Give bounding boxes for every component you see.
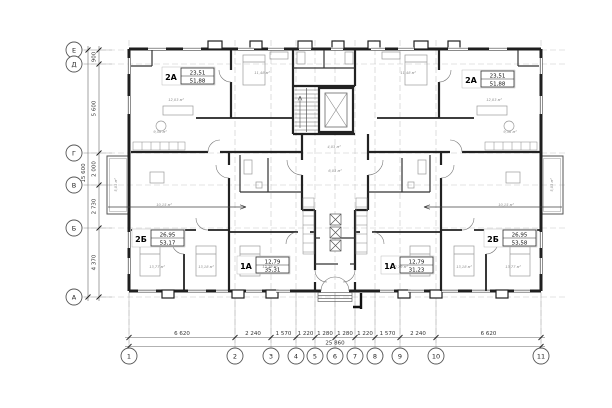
axis-bottom-4: 4 bbox=[294, 352, 298, 360]
axis-bottom-8: 8 bbox=[373, 352, 377, 360]
room-label: 9,56 м² bbox=[503, 130, 517, 134]
dim-left-5: 4 370 bbox=[92, 254, 98, 270]
apartment-type: 2Б bbox=[135, 235, 147, 244]
axis-left-V: В bbox=[72, 181, 76, 189]
axis-bottom-7: 7 bbox=[353, 352, 357, 360]
apartment-total-area: 51,88 bbox=[490, 82, 506, 88]
axis-bottom-9: 9 bbox=[398, 352, 402, 360]
axis-bottom-10: 10 bbox=[432, 352, 440, 360]
apartment-living-area: 26,95 bbox=[160, 233, 176, 239]
room-label: 11,48 м² bbox=[400, 71, 416, 75]
dim-bottom-5: 1 280 bbox=[317, 331, 333, 337]
room-label: 12,79 м² bbox=[392, 265, 408, 269]
dim-bottom-6: 1 280 bbox=[337, 331, 353, 337]
dim-bottom-7: 1 220 bbox=[357, 331, 373, 337]
axis-bottom-2: 2 bbox=[233, 352, 237, 360]
axis-bottom-11: 11 bbox=[537, 352, 545, 360]
axis-bottom-6: 6 bbox=[333, 352, 337, 360]
apartment-type: 2Б bbox=[487, 235, 499, 244]
room-label: 13,18 м² bbox=[198, 265, 214, 269]
axis-bottom-3: 3 bbox=[269, 352, 273, 360]
apartment-total-area: 31,23 bbox=[409, 268, 425, 274]
axis-bottom-1: 1 bbox=[127, 352, 131, 360]
dim-bottom-8: 1 570 bbox=[380, 331, 396, 337]
dim-left-4: 2 730 bbox=[92, 198, 98, 214]
room-label: 6,03 м² bbox=[328, 169, 342, 173]
room-label: 11,48 м² bbox=[254, 71, 270, 75]
room-label: 12,79 м² bbox=[262, 265, 278, 269]
dim-bottom-2: 2 240 bbox=[245, 331, 261, 337]
room-label: 4,03 м² bbox=[327, 145, 341, 149]
dim-bottom-3: 1 570 bbox=[276, 331, 292, 337]
room-label: 5,03 м² bbox=[550, 178, 554, 192]
room-label: 9,56 м² bbox=[153, 130, 167, 134]
room-label: 13,77 м² bbox=[149, 265, 165, 269]
axis-left-A: А bbox=[72, 293, 77, 301]
vent-shafts bbox=[330, 214, 341, 251]
room-label: 10,15 м² bbox=[498, 203, 514, 207]
dim-left-2: 5 600 bbox=[92, 100, 98, 116]
apartment-label-2B-left: 2Б 26,95 53,17 bbox=[132, 229, 185, 247]
apartment-total-area: 51,88 bbox=[190, 79, 206, 85]
apartment-living-area: 26,95 bbox=[512, 233, 528, 239]
room-label: 12,03 м² bbox=[486, 98, 502, 102]
room-label: 12,03 м² bbox=[168, 98, 184, 102]
axis-left-E: Е bbox=[72, 46, 76, 54]
apartment-label-2B-right: 2Б 26,95 53,58 bbox=[484, 229, 537, 247]
apartment-type: 2А bbox=[165, 73, 178, 82]
apartment-label-2A-right: 2А 23,51 51,88 bbox=[462, 70, 515, 88]
apartment-label-2A-left: 2А 23,51 51,88 bbox=[162, 67, 215, 85]
axis-bottom-5: 5 bbox=[313, 352, 317, 360]
axis-left-G: Г bbox=[72, 149, 76, 157]
dim-left-total: 15 600 bbox=[81, 163, 87, 183]
dim-bottom-total: 25 860 bbox=[325, 341, 345, 347]
floor-plan-page: 6 620 2 240 1 570 1 220 1 280 1 280 1 22… bbox=[0, 0, 612, 408]
apartment-total-area: 53,58 bbox=[512, 241, 528, 247]
dim-left-1: 900 bbox=[92, 51, 98, 62]
dim-bottom-1: 6 620 bbox=[174, 331, 190, 337]
apartment-type: 1А bbox=[240, 262, 253, 271]
room-label: 10,15 м² bbox=[156, 203, 172, 207]
apartment-type: 2А bbox=[465, 76, 478, 85]
dim-left-3: 2 000 bbox=[92, 161, 98, 177]
room-label: 13,77 м² bbox=[505, 265, 521, 269]
dim-bottom-10: 6 620 bbox=[481, 331, 497, 337]
room-label: 5,03 м² bbox=[114, 178, 118, 192]
dim-bottom-9: 2 240 bbox=[410, 331, 426, 337]
floor-plan-svg: 6 620 2 240 1 570 1 220 1 280 1 280 1 22… bbox=[0, 0, 612, 408]
apartment-living-area: 12,79 bbox=[409, 260, 425, 266]
apartment-living-area: 23,51 bbox=[490, 74, 506, 80]
dim-bottom-4: 1 220 bbox=[298, 331, 314, 337]
axis-left-B: Б bbox=[72, 224, 76, 232]
axis-left-D: Д bbox=[71, 60, 76, 68]
apartment-living-area: 23,51 bbox=[190, 71, 206, 77]
room-label: 13,18 м² bbox=[456, 265, 472, 269]
apartment-total-area: 53,17 bbox=[160, 241, 176, 247]
